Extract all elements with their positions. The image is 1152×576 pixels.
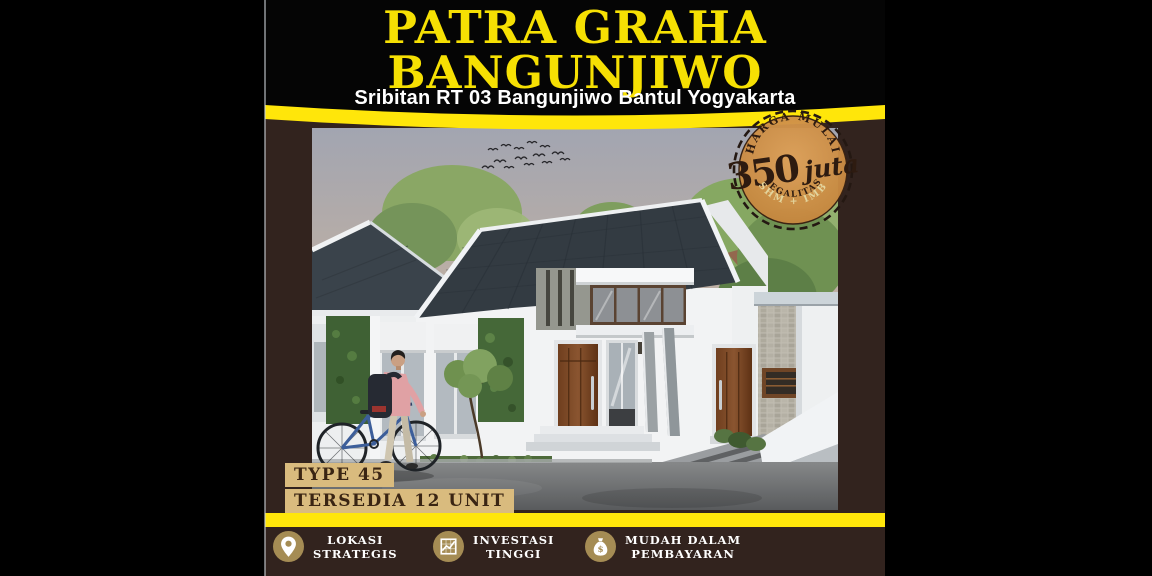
main-door bbox=[554, 340, 602, 430]
feature-pembayaran: $ MUDAH DALAM PEMBAYARAN bbox=[585, 531, 741, 562]
location-pin-icon bbox=[273, 531, 304, 562]
availability-label: TERSEDIA 12 UNIT bbox=[285, 489, 514, 513]
feature-line1: LOKASI bbox=[313, 533, 398, 547]
poster-canvas: PATRA GRAHA BANGUNJIWO Sribitan RT 03 Ba… bbox=[0, 0, 1152, 576]
clerestory-window bbox=[590, 285, 686, 325]
svg-text:$: $ bbox=[597, 545, 603, 555]
fence-coping bbox=[754, 292, 838, 306]
money-bag-icon: $ bbox=[585, 531, 616, 562]
project-title-line1: PATRA GRAHA bbox=[265, 5, 885, 50]
porch-steps bbox=[526, 426, 660, 451]
second-door bbox=[712, 344, 756, 436]
feature-line2: PEMBAYARAN bbox=[625, 547, 741, 561]
unit-info: TYPE 45 TERSEDIA 12 UNIT bbox=[285, 463, 514, 515]
flyer-left-edge-line bbox=[264, 0, 266, 576]
features-bar: LOKASI STRATEGIS INVESTASI TINGGI bbox=[265, 531, 885, 576]
feature-investasi: INVESTASI TINGGI bbox=[433, 531, 554, 562]
feature-line2: TINGGI bbox=[473, 547, 554, 561]
project-title: PATRA GRAHA BANGUNJIWO bbox=[265, 5, 885, 95]
feature-line2: STRATEGIS bbox=[313, 547, 398, 561]
price-badge: HARGA MULAI 350 juta LEGALITAS SHM + IMB bbox=[727, 104, 859, 236]
type-label: TYPE 45 bbox=[285, 463, 394, 487]
bottom-yellow-stripe bbox=[265, 513, 885, 527]
feature-lokasi: LOKASI STRATEGIS bbox=[273, 531, 398, 562]
feature-line1: MUDAH DALAM bbox=[625, 533, 741, 547]
glass-door bbox=[606, 340, 638, 430]
investment-chart-icon bbox=[433, 531, 464, 562]
real-estate-flyer: PATRA GRAHA BANGUNJIWO Sribitan RT 03 Ba… bbox=[265, 0, 885, 576]
feature-line1: INVESTASI bbox=[473, 533, 554, 547]
